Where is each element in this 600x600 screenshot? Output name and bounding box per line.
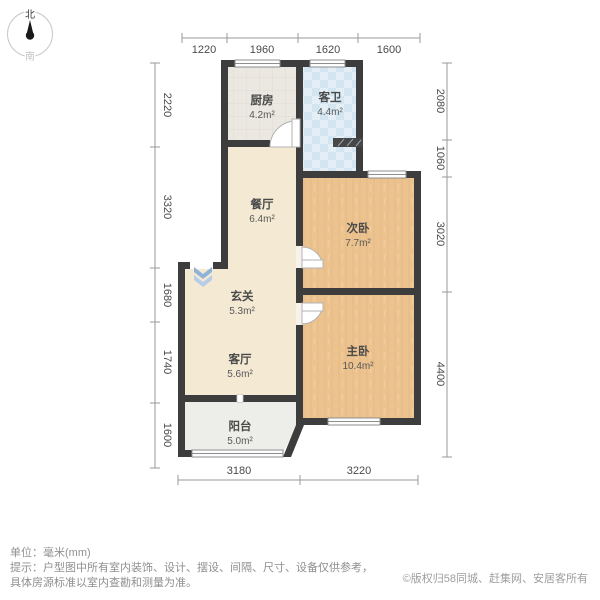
guest-bathroom-area: 4.4m² <box>317 107 343 118</box>
footer-notes: 单位：毫米(mm) 提示：户型图中所有室内装饰、设计、摆设、间隔、尺寸、设备仅供… <box>10 546 373 591</box>
unit-note: 单位：毫米(mm) <box>10 546 373 561</box>
dimension-left: 2220 3320 1680 1740 1600 <box>150 63 173 468</box>
dim-top-4: 1600 <box>377 44 401 56</box>
wall-kitchen-bottom <box>221 140 270 147</box>
dim-left-2: 3320 <box>161 195 173 219</box>
dimension-bottom: 3180 3220 <box>178 465 418 485</box>
dim-right-2: 1060 <box>434 146 446 170</box>
living-room-area: 5.6m² <box>227 369 253 380</box>
master-bedroom-area: 10.4m² <box>342 361 374 372</box>
wall-balcony-top-a <box>185 395 237 402</box>
entry-hall-label: 玄关 <box>231 289 254 303</box>
wall-center-vertical-b <box>296 268 303 303</box>
living-room-label: 客厅 <box>228 352 252 366</box>
master-bedroom-window <box>328 418 380 425</box>
compass-needle-ball <box>26 31 34 39</box>
compass-south-label: 南 <box>25 50 35 63</box>
guest-bathroom-label: 客卫 <box>318 90 342 104</box>
dim-right-1: 2080 <box>434 89 446 113</box>
pipe-shaft <box>333 138 363 147</box>
balcony-window <box>192 450 283 457</box>
balcony-label: 阳台 <box>229 419 252 433</box>
compass-icon: 北 南 <box>8 9 53 63</box>
dim-top-2: 1960 <box>250 44 274 56</box>
dining-room-label: 餐厅 <box>250 197 274 211</box>
dim-bottom-1: 3180 <box>227 465 251 477</box>
wall-bedroom-divider <box>303 288 414 295</box>
floor-plan: 厨房 4.2m² 客卫 4.4m² 餐厅 6.4m² 次卧 7.7m² 玄关 5… <box>0 0 600 600</box>
dim-top-1: 1220 <box>192 44 216 56</box>
wall-bedroom2-top-a <box>303 171 368 178</box>
kitchen-label: 厨房 <box>251 93 274 107</box>
wall-balcony-bottom-corner <box>178 450 192 457</box>
entry-door-opening <box>190 262 213 269</box>
wall-center-vertical-a <box>296 60 303 246</box>
dim-right-3: 3020 <box>434 222 446 246</box>
copyright-note: ©版权归58同城、赶集网、安居客所有 <box>403 570 588 586</box>
wall-balcony-top-b <box>243 395 303 402</box>
dim-left-4: 1740 <box>161 350 173 374</box>
balcony-door-gap <box>237 395 243 403</box>
second-bedroom-label: 次卧 <box>347 221 370 235</box>
dim-bottom-2: 3220 <box>347 465 371 477</box>
wall-left-lower <box>178 262 185 457</box>
tip-note-line1: 提示：户型图中所有室内装饰、设计、摆设、间隔、尺寸、设备仅供参考， <box>10 561 373 576</box>
dining-room-area: 6.4m² <box>249 214 275 225</box>
bathroom-floor <box>303 67 356 171</box>
wall-master-bottom-b <box>380 418 421 425</box>
dimension-top: 1220 1960 1620 1600 <box>182 33 420 56</box>
dim-top-3: 1620 <box>316 44 340 56</box>
second-bedroom-area: 7.7m² <box>345 238 371 249</box>
wall-bathroom-right <box>356 60 363 178</box>
dim-left-3: 1680 <box>161 283 173 307</box>
wall-center-vertical-c <box>296 325 303 420</box>
dim-right-4: 4400 <box>434 362 446 386</box>
dimension-right: 2080 1060 3020 4400 <box>434 63 452 457</box>
second-bedroom-window <box>368 171 406 178</box>
entry-hall-area: 5.3m² <box>229 306 255 317</box>
master-bedroom-label: 主卧 <box>347 344 370 358</box>
kitchen-window <box>235 60 280 67</box>
compass-north-label: 北 <box>25 9 35 21</box>
wall-entry-step-b <box>213 262 228 269</box>
dim-left-5: 1600 <box>161 423 173 447</box>
wall-left-upper <box>221 60 228 269</box>
kitchen-area: 4.2m² <box>249 110 275 121</box>
dim-left-1: 2220 <box>161 93 173 117</box>
wall-master-bottom-a <box>296 418 328 425</box>
balcony-area: 5.0m² <box>227 436 253 447</box>
tip-note-line2: 具体房源标准以室内查勘和测量为准。 <box>10 576 373 591</box>
bathroom-window <box>310 60 345 67</box>
wall-right <box>414 171 421 425</box>
